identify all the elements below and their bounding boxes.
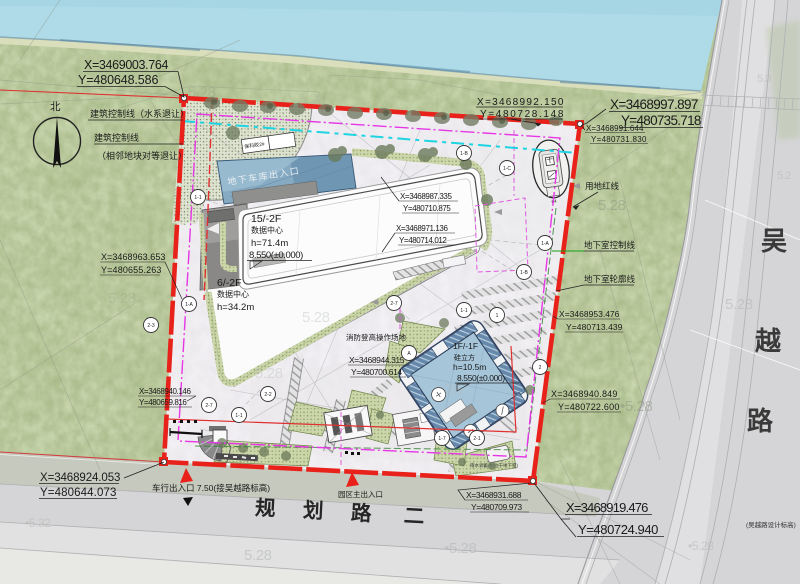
svg-text:吴: 吴 <box>761 226 787 256</box>
svg-text:1F/-1F: 1F/-1F <box>453 341 478 351</box>
svg-text:h=10.5m: h=10.5m <box>453 362 486 372</box>
svg-text:X=3468940.849: X=3468940.849 <box>551 389 617 399</box>
svg-text:2-7: 2-7 <box>205 403 212 409</box>
svg-text:8.550(±0.000): 8.550(±0.000) <box>457 373 505 383</box>
svg-text:5.28: 5.28 <box>298 91 326 108</box>
svg-text:Y=480710.875: Y=480710.875 <box>403 204 451 213</box>
svg-text:6/-2F: 6/-2F <box>217 277 242 289</box>
svg-text:Y=480714.012: Y=480714.012 <box>399 236 447 245</box>
svg-text:路: 路 <box>747 406 774 436</box>
svg-text:X=3468997.897: X=3468997.897 <box>610 97 698 112</box>
svg-text:路: 路 <box>350 501 372 526</box>
svg-text:Y=480644.073: Y=480644.073 <box>40 487 116 499</box>
svg-text:Y=480709.973: Y=480709.973 <box>471 502 522 512</box>
svg-text:1-1: 1-1 <box>460 308 467 314</box>
svg-text:1-B: 1-B <box>460 151 468 157</box>
svg-text:规: 规 <box>254 497 276 521</box>
svg-text:5.28: 5.28 <box>188 84 216 101</box>
svg-text:15/-2F: 15/-2F <box>251 213 281 225</box>
svg-text:建筑控制线: 建筑控制线 <box>94 132 139 143</box>
svg-text:车行出入口 7.50(接吴越路标高): 车行出入口 7.50(接吴越路标高) <box>152 483 270 493</box>
svg-text:X=3469003.764: X=3469003.764 <box>84 58 168 72</box>
svg-text:1-B: 1-B <box>520 270 528 276</box>
svg-text:1-A: 1-A <box>541 241 549 247</box>
svg-text:5.28: 5.28 <box>725 296 753 313</box>
svg-text:1: 1 <box>496 313 499 319</box>
svg-text:2-2: 2-2 <box>264 392 271 398</box>
svg-text:X=3468987.335: X=3468987.335 <box>400 192 452 201</box>
svg-text:Y=480713.439: Y=480713.439 <box>566 322 623 332</box>
svg-text:Y=480655.263: Y=480655.263 <box>101 265 161 275</box>
svg-text:Y=480728.148: Y=480728.148 <box>480 109 564 120</box>
svg-text:2-3: 2-3 <box>147 323 154 329</box>
svg-text:Y=480724.940: Y=480724.940 <box>578 522 658 537</box>
svg-text:5.28: 5.28 <box>108 290 136 307</box>
svg-text:h=34.2m: h=34.2m <box>217 302 254 313</box>
svg-text:地下室轮廓线: 地下室轮廓线 <box>584 274 636 284</box>
svg-text:X=3468919.476: X=3468919.476 <box>566 500 648 515</box>
svg-text:2-1: 2-1 <box>473 436 480 442</box>
svg-text:•5.28: •5.28 <box>620 398 653 415</box>
svg-text:X=3468992.150: X=3468992.150 <box>477 97 564 108</box>
svg-text:数据中心: 数据中心 <box>217 289 249 299</box>
svg-text:5.28: 5.28 <box>255 365 283 382</box>
svg-text:Y=480700.614: Y=480700.614 <box>351 367 402 377</box>
svg-text:X=3468944.315: X=3468944.315 <box>349 355 405 365</box>
svg-text:•5.32: •5.32 <box>25 516 51 530</box>
svg-text:X=3468991.644: X=3468991.644 <box>586 124 644 133</box>
svg-text:X=3468940.146: X=3468940.146 <box>139 387 191 396</box>
svg-text:消防登高操作场地: 消防登高操作场地 <box>346 332 406 342</box>
svg-text:X=3468924.053: X=3468924.053 <box>40 472 120 484</box>
svg-text:用地红线: 用地红线 <box>585 181 620 191</box>
svg-text:X=3468931.688: X=3468931.688 <box>466 490 522 500</box>
svg-text:1-1: 1-1 <box>194 195 201 201</box>
svg-text:X=3468953.476: X=3468953.476 <box>559 309 620 319</box>
svg-text:2-7: 2-7 <box>390 301 397 307</box>
svg-text:二: 二 <box>403 504 425 528</box>
svg-text:8.550(±0.000): 8.550(±0.000) <box>249 250 303 261</box>
svg-text:2: 2 <box>539 365 542 371</box>
svg-text:建筑控制线（水系退让）: 建筑控制线（水系退让） <box>90 108 189 119</box>
svg-text:地下室控制线: 地下室控制线 <box>584 240 636 250</box>
svg-text:越: 越 <box>755 326 782 356</box>
svg-text:Y=480722.600: Y=480722.600 <box>558 402 619 412</box>
svg-text:1-C: 1-C <box>503 166 511 172</box>
svg-text:（相邻地块对等退让）: （相邻地块对等退让） <box>97 150 187 161</box>
svg-text:•5.28: •5.28 <box>444 540 477 557</box>
svg-text:h=71.4m: h=71.4m <box>251 238 288 249</box>
svg-text:X=3468963.653: X=3468963.653 <box>101 252 165 262</box>
svg-text:X=3468971.136: X=3468971.136 <box>396 224 448 233</box>
svg-text:5.2: 5.2 <box>777 170 791 182</box>
svg-text:•5.28: •5.28 <box>688 539 714 553</box>
svg-text:5.28: 5.28 <box>244 547 272 564</box>
svg-text:北: 北 <box>50 101 61 113</box>
svg-text:1-7: 1-7 <box>438 436 445 442</box>
svg-text:数据中心: 数据中心 <box>251 225 283 235</box>
svg-text:Y=480731.830: Y=480731.830 <box>591 135 647 144</box>
svg-text:1-1: 1-1 <box>235 413 242 419</box>
svg-text:Y=480659.816: Y=480659.816 <box>139 398 187 407</box>
svg-text:划: 划 <box>302 498 324 523</box>
svg-text:(吴越路设计标高): (吴越路设计标高) <box>746 520 796 529</box>
svg-text:5.28: 5.28 <box>598 197 626 214</box>
svg-text:5.3: 5.3 <box>757 73 771 85</box>
svg-text:园区主出入口: 园区主出入口 <box>338 489 383 499</box>
svg-text:Y=480648.586: Y=480648.586 <box>78 73 158 87</box>
svg-text:1-A: 1-A <box>185 302 193 308</box>
svg-text:5.28: 5.28 <box>302 309 330 326</box>
svg-text:硅立方: 硅立方 <box>454 353 475 362</box>
